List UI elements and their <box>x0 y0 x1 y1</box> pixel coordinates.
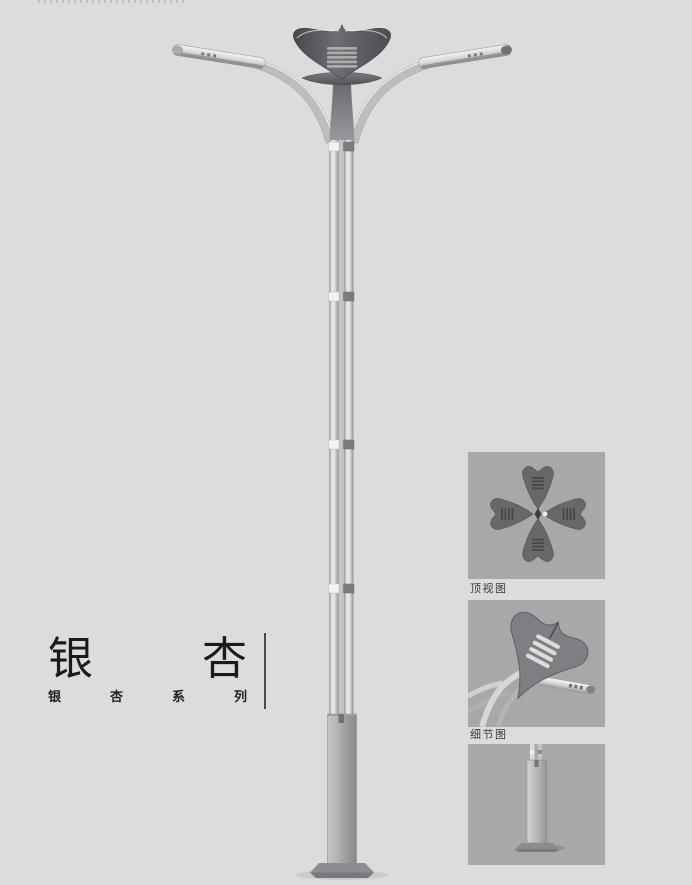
product-title-char: 杏 <box>202 634 247 684</box>
pole-base <box>296 714 388 880</box>
series-char: 银 <box>48 690 61 706</box>
product-title-char: 银 <box>48 634 93 684</box>
series-char: 系 <box>172 690 185 706</box>
series-char: 杏 <box>110 690 123 706</box>
panel-top-view <box>468 452 605 579</box>
panel-base-view <box>468 744 605 865</box>
title-divider-line <box>264 633 266 709</box>
catalog-page: 银 杏 银 杏 系 列 <box>0 0 692 885</box>
top-view-caption: 顶视图 <box>470 582 508 595</box>
series-char: 列 <box>234 690 247 706</box>
ginkgo-crown <box>293 25 390 143</box>
lamp-head-left <box>171 44 266 70</box>
top-view-illustration <box>468 452 605 579</box>
product-title: 银 杏 <box>48 634 247 684</box>
base-illustration <box>468 744 605 865</box>
panel-detail-view <box>468 600 605 727</box>
product-series-label: 银 杏 系 列 <box>48 690 247 706</box>
lamp-head-right <box>418 44 513 70</box>
lamp-pole <box>329 140 355 714</box>
detail-illustration <box>468 600 605 727</box>
detail-view-caption: 细节图 <box>470 728 508 741</box>
